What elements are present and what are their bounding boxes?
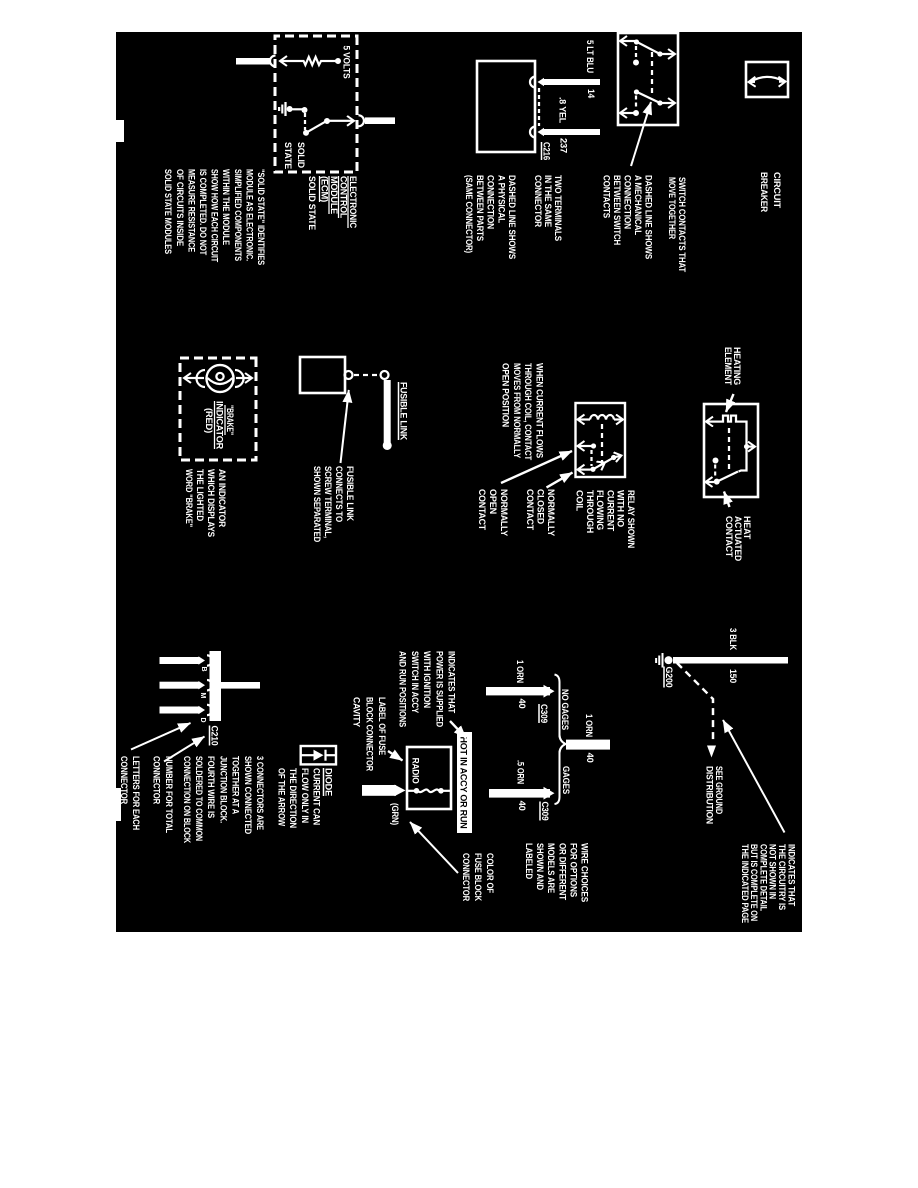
svg-text:DIODE: DIODE [324,768,334,796]
svg-text:WIRE CHOICES: WIRE CHOICES [580,843,590,902]
svg-text:(SAME CONNECTOR): (SAME CONNECTOR) [464,175,474,253]
svg-text:B: B [200,667,207,672]
svg-text:OF THE ARROW: OF THE ARROW [276,768,286,827]
svg-text:SWITCH IN ACCY: SWITCH IN ACCY [410,651,420,713]
svg-text:THE INDICATED PAGE: THE INDICATED PAGE [740,844,750,923]
svg-text:14: 14 [586,89,596,98]
svg-text:NO GAGES: NO GAGES [560,689,570,730]
svg-text:CONNECTION ON BLOCK: CONNECTION ON BLOCK [182,756,192,844]
svg-text:HEAT: HEAT [742,516,752,540]
svg-text:THE CIRCUITRY IS: THE CIRCUITRY IS [777,844,787,910]
svg-text:THROUGH COIL, CONTACT: THROUGH COIL, CONTACT [523,363,533,461]
svg-text:MOVES FROM NORMALLY: MOVES FROM NORMALLY [512,363,522,458]
svg-text:INDICATES THAT: INDICATES THAT [786,844,796,907]
svg-text:WITH IGNITION: WITH IGNITION [422,651,432,708]
svg-text:HOT IN ACCY OR RUN: HOT IN ACCY OR RUN [459,737,469,829]
svg-text:NUMBER FOR TOTAL: NUMBER FOR TOTAL [164,756,174,834]
svg-text:FOURTH WIRE IS: FOURTH WIRE IS [206,756,216,818]
svg-text:CONTACT: CONTACT [477,489,487,531]
svg-text:IS COMPLETED. DO NOT: IS COMPLETED. DO NOT [198,169,208,256]
svg-text:NORMALLY: NORMALLY [499,489,509,536]
svg-text:THROUGH: THROUGH [585,490,595,533]
svg-text:SHOWN AND: SHOWN AND [535,843,545,891]
svg-text:FUSE BLOCK: FUSE BLOCK [473,853,483,902]
svg-text:SHOWN SEPARATED: SHOWN SEPARATED [312,466,322,543]
svg-text:40: 40 [517,801,527,811]
svg-text:D: D [199,718,206,723]
svg-text:(GRN): (GRN) [390,803,400,825]
svg-text:DISTRIBUTION: DISTRIBUTION [705,766,715,824]
svg-text:BLOCK CONNECTOR: BLOCK CONNECTOR [364,697,374,772]
svg-text:(ECM): (ECM) [320,176,330,202]
svg-text:(RED): (RED) [204,408,214,433]
svg-text:OPEN: OPEN [488,489,498,514]
svg-text:WITH NO: WITH NO [616,490,626,527]
svg-text:DASHED LINE SHOWS: DASHED LINE SHOWS [507,175,517,259]
svg-text:TWO TERMINALS: TWO TERMINALS [553,175,563,241]
svg-text:G200: G200 [664,667,674,688]
svg-text:INDICATES THAT: INDICATES THAT [447,651,457,714]
svg-text:CONTACT: CONTACT [525,489,535,531]
svg-text:DASHED LINE SHOWS: DASHED LINE SHOWS [644,175,654,259]
svg-text:GAGES: GAGES [561,766,571,794]
svg-text:WITHIN THE MODULE: WITHIN THE MODULE [221,169,231,245]
svg-text:40: 40 [585,753,595,763]
svg-text:ELEMENT: ELEMENT [723,347,733,386]
svg-text:FLOW ONLY IN: FLOW ONLY IN [300,768,310,823]
svg-text:CONNECTS TO: CONNECTS TO [334,466,344,522]
svg-text:150: 150 [728,669,738,683]
svg-text:COLOR OF: COLOR OF [485,853,495,894]
svg-text:SEE GROUND: SEE GROUND [714,766,724,815]
svg-text:CONTROL: CONTROL [339,176,349,219]
svg-text:40: 40 [517,699,527,709]
svg-text:MODELS ARE: MODELS ARE [546,843,556,893]
svg-text:INDICATOR: INDICATOR [215,401,225,450]
svg-text:WHICH DISPLAYS: WHICH DISPLAYS [206,469,216,537]
svg-text:CONNECTOR: CONNECTOR [533,175,543,228]
svg-text:A MECHANICAL: A MECHANICAL [633,175,643,236]
svg-text:ACTUATED: ACTUATED [733,516,743,562]
svg-text:5 LT BLU: 5 LT BLU [585,40,595,73]
svg-text:POWER IS SUPPLIED: POWER IS SUPPLIED [434,651,444,728]
svg-text:SIMPLIFIED COMPONENTS: SIMPLIFIED COMPONENTS [233,169,243,261]
svg-text:TOGETHER AT A: TOGETHER AT A [231,756,241,815]
svg-text:A PHYSICAL: A PHYSICAL [496,175,506,224]
svg-text:CONNECTOR: CONNECTOR [461,853,471,902]
svg-text:SOLDERED TO COMMON: SOLDERED TO COMMON [194,756,204,841]
svg-text:THE LIGHTED: THE LIGHTED [195,469,205,522]
svg-text:C309: C309 [540,802,550,821]
svg-text:SOLID: SOLID [296,142,306,169]
svg-text:CURRENT: CURRENT [605,490,615,532]
svg-text:IN THE SAME: IN THE SAME [543,175,553,227]
svg-text:WORD "BRAKE": WORD "BRAKE" [184,469,194,527]
svg-text:.5 ORN: .5 ORN [516,760,526,784]
svg-text:NORMALLY: NORMALLY [546,489,556,536]
svg-text:AND RUN POSITIONS: AND RUN POSITIONS [398,651,408,727]
svg-text:FLOWING: FLOWING [595,490,605,530]
svg-text:COIL: COIL [575,490,585,512]
svg-text:MODULE AS ELECTRONIC.: MODULE AS ELECTRONIC. [244,169,254,261]
svg-text:OPEN POSITION: OPEN POSITION [501,363,511,427]
svg-text:SWITCH CONTACTS THAT: SWITCH CONTACTS THAT [677,177,687,273]
svg-text:SCREW TERMINAL,: SCREW TERMINAL, [323,466,333,538]
svg-text:C216: C216 [542,142,552,160]
svg-text:CURRENT CAN: CURRENT CAN [312,768,322,825]
svg-text:FUSIBLE LINK: FUSIBLE LINK [345,466,355,522]
svg-text:WHEN CURRENT FLOWS: WHEN CURRENT FLOWS [535,363,545,458]
svg-text:FUSIBLE LINK: FUSIBLE LINK [399,382,409,441]
svg-text:OR DIFFERENT: OR DIFFERENT [557,843,567,901]
svg-text:3 BLK: 3 BLK [728,628,738,651]
svg-text:BETWEEN SWITCH: BETWEEN SWITCH [612,175,622,245]
svg-text:LETTERS FOR EACH: LETTERS FOR EACH [131,756,141,830]
svg-text:5 VOLTS: 5 VOLTS [342,46,352,79]
svg-text:CONTACTS: CONTACTS [602,175,612,218]
svg-text:SHOW HOW EACH CIRCUIT: SHOW HOW EACH CIRCUIT [210,169,220,263]
svg-text:BETWEEN PARTS: BETWEEN PARTS [475,175,485,241]
svg-text:ELECTRONIC: ELECTRONIC [348,176,358,229]
svg-text:FOR OPTIONS: FOR OPTIONS [568,843,578,897]
svg-text:BREAKER: BREAKER [759,172,769,213]
svg-text:1 ORN: 1 ORN [584,714,594,737]
svg-text:CONTACT: CONTACT [724,516,734,558]
svg-text:HEATING: HEATING [732,347,742,385]
svg-text:COMPLETE DETAIL: COMPLETE DETAIL [758,844,768,912]
svg-text:"SOLID STATE" IDENTIFIES: "SOLID STATE" IDENTIFIES [256,169,266,265]
svg-text:LABELED: LABELED [524,843,534,880]
svg-text:RADIO: RADIO [411,758,421,784]
svg-text:MEASURE RESISTANCE: MEASURE RESISTANCE [186,169,196,252]
svg-text:CIRCUIT: CIRCUIT [772,172,782,209]
svg-text:SHOWN CONNECTED: SHOWN CONNECTED [243,756,253,835]
svg-text:1 ORN: 1 ORN [515,660,525,683]
svg-text:"BRAKE": "BRAKE" [225,405,235,435]
svg-text:AN INDICATOR: AN INDICATOR [217,469,227,528]
svg-text:CLOSED: CLOSED [536,489,546,525]
svg-text:CONNECTION: CONNECTION [623,175,633,229]
svg-text:MODULE: MODULE [329,176,339,214]
svg-text:.8 YEL: .8 YEL [558,97,568,124]
svg-text:STATE: STATE [283,142,293,169]
svg-text:RELAY SHOWN: RELAY SHOWN [626,490,636,548]
svg-text:237: 237 [559,138,569,153]
svg-text:C210: C210 [210,726,220,746]
svg-text:THE DIRECTION: THE DIRECTION [288,768,298,828]
svg-text:CONNECTOR: CONNECTOR [152,756,162,805]
svg-text:MOVE TOGETHER: MOVE TOGETHER [667,177,677,240]
svg-text:CAVITY: CAVITY [352,697,362,727]
svg-text:BUT IS COMPLETE ON: BUT IS COMPLETE ON [749,844,759,921]
svg-text:M: M [199,693,206,699]
svg-text:LABEL OF FUSE: LABEL OF FUSE [377,697,387,755]
svg-text:C309: C309 [539,704,549,723]
svg-text:OF CIRCUITS INSIDE: OF CIRCUITS INSIDE [175,169,185,246]
svg-text:3 CONNECTORS ARE: 3 CONNECTORS ARE [255,756,265,830]
svg-text:SOLID STATE: SOLID STATE [307,176,317,230]
svg-text:CONNECTION: CONNECTION [486,175,496,229]
svg-text:NOT SHOWN IN: NOT SHOWN IN [768,844,778,899]
svg-text:JUNCTION BLOCK.: JUNCTION BLOCK. [218,756,228,823]
svg-text:SOLID STATE MODULES: SOLID STATE MODULES [163,169,173,254]
